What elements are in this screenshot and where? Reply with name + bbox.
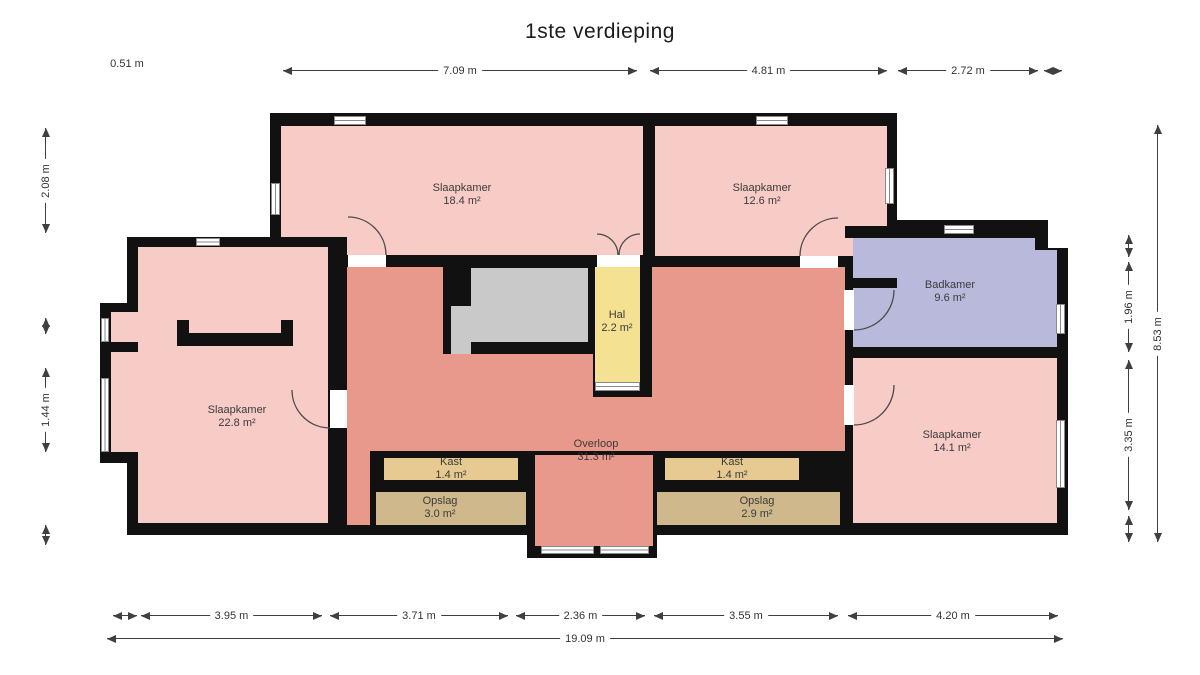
room-label-badkamer: Badkamer 9.6 m² [925,279,975,305]
room-label-slaapkamer-18: Slaapkamer 18.4 m² [433,182,492,208]
dimension-top-small [1044,70,1062,71]
dimension-top-1: 7.09 m [283,70,637,71]
door-opening [348,255,386,267]
floorplan-canvas: 1ste verdieping [0,0,1200,675]
dimension-left-0: 2.08 m [45,128,46,233]
window [196,238,220,246]
room-area: 14.1 m² [923,442,982,455]
room-name: Overloop [574,438,619,451]
dimension-bottom-total: 19.09 m [107,638,1063,639]
room-name: Slaapkamer [208,404,267,417]
room-area: 22.8 m² [208,417,267,430]
door-opening [800,256,838,268]
room-name: Opslag [740,495,775,508]
room-overloop [347,354,593,451]
room-area: 31.3 m² [574,451,619,464]
dimension-bottom-2: 2.36 m [516,615,645,616]
room-name: Kast [716,456,747,469]
room-label-kast-links: Kast 1.4 m² [435,456,466,482]
room-area: 1.4 m² [716,469,747,482]
room-overloop [535,455,653,546]
dimension-top-0: 0.51 m [110,58,144,70]
room-name: Slaapkamer [433,182,492,195]
dimension-right-small-2 [1128,516,1129,542]
plan-title: 1ste verdieping [525,20,675,44]
dimension-left-small-1 [45,318,46,334]
window [271,183,280,215]
window [334,116,366,125]
room-area: 18.4 m² [433,195,492,208]
dimension-bottom-3: 3.55 m [654,615,838,616]
room-overloop [347,267,443,354]
door-opening [597,255,640,267]
window [1056,304,1065,334]
dimension-right-small-1 [1128,235,1129,257]
room-name: Kast [435,456,466,469]
window [101,378,109,452]
room-slaapkamer-22 [138,247,328,523]
room-label-opslag-links: Opslag 3.0 m² [423,495,458,521]
window [541,546,594,554]
exterior-notch [1048,220,1070,248]
dimension-top-3: 2.72 m [898,70,1038,71]
window [885,168,894,204]
room-label-slaapkamer-14: Slaapkamer 14.1 m² [923,429,982,455]
room-area: 1.4 m² [435,469,466,482]
room-label-kast-rechts: Kast 1.4 m² [716,456,747,482]
room-name: Slaapkamer [923,429,982,442]
dimension-bottom-4: 4.20 m [848,615,1058,616]
dimension-right-1: 3.35 m [1128,360,1129,510]
room-label-opslag-rechts: Opslag 2.9 m² [740,495,775,521]
dimension-right-0: 1.96 m [1128,262,1129,352]
room-name: Hal [601,309,632,322]
dimension-bottom-0: 3.95 m [141,615,322,616]
window [101,318,109,342]
room-overloop [652,267,845,451]
room-slaapkamer-18 [347,237,643,255]
room-overloop [347,451,370,525]
room-area: 2.2 m² [601,322,632,335]
room-name: Badkamer [925,279,975,292]
room-area: 9.6 m² [925,292,975,305]
room-area: 2.9 m² [740,508,775,521]
dimension-bottom-1: 3.71 m [330,615,508,616]
door-opening [330,390,347,428]
room-area: 12.6 m² [733,195,792,208]
room-slaapkamer-22 [111,312,138,452]
stairwell [451,306,471,354]
dimension-bottom-small [113,615,137,616]
dimension-left-1: 1.44 m [45,368,46,452]
room-label-overloop: Overloop 31.3 m² [574,438,619,464]
room-label-slaapkamer-22: Slaapkamer 22.8 m² [208,404,267,430]
stairwell [471,268,588,342]
window [1056,420,1065,488]
room-area: 3.0 m² [423,508,458,521]
room-badkamer [1035,250,1057,347]
room-name: Slaapkamer [733,182,792,195]
door-opening [844,290,854,330]
room-label-hal: Hal 2.2 m² [601,309,632,335]
door-opening [844,385,854,425]
window [944,225,974,234]
dimension-left-small-2 [45,525,46,545]
room-name: Opslag [423,495,458,508]
window [756,116,788,125]
room-label-slaapkamer-12: Slaapkamer 12.6 m² [733,182,792,208]
chimney-wall [177,333,293,346]
window [600,546,649,554]
dimension-top-2: 4.81 m [650,70,887,71]
wall [111,342,138,352]
wall [845,278,897,288]
dimension-right-total: 8.53 m [1157,125,1158,542]
window [595,382,640,391]
